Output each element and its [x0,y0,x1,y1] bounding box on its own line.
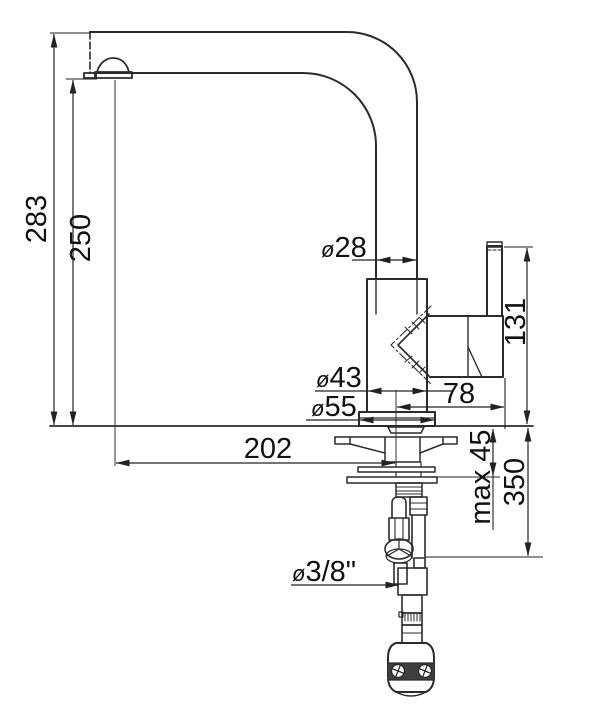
dim-55-label: ø55 [311,391,357,423]
dim-250-label: 250 [65,214,97,262]
clamp-screw-right [419,665,432,678]
swivel-joint [391,306,431,384]
hose-weight [388,643,434,696]
base-flange [359,412,435,426]
dim-43-label: ø43 [316,362,362,394]
pullout-hose [398,497,427,643]
dim-202-label: 202 [244,433,292,465]
dim-78-label: 78 [443,378,475,410]
faucet-technical-drawing: 283 250 131 max 45 350 ø28 ø43 ø55 78 20… [0,0,602,704]
faucet-body [367,279,427,412]
dim-131-label: 131 [500,298,532,346]
dim-28-label: ø28 [321,232,367,264]
faucet-technical-drawing-page: 283 250 131 max 45 350 ø28 ø43 ø55 78 20… [0,0,602,704]
dim-38-label: ø3/8" [292,556,356,588]
dim-350-label: 350 [499,458,531,506]
spout-outline [90,32,417,279]
handle-housing [427,316,503,377]
clamp-screw-left [392,665,405,678]
dim-283-label: 283 [21,195,53,243]
pullout-head-aerator [84,58,132,78]
supply-hose-valve [385,497,413,584]
dim-max45-label: max 45 [465,429,497,524]
